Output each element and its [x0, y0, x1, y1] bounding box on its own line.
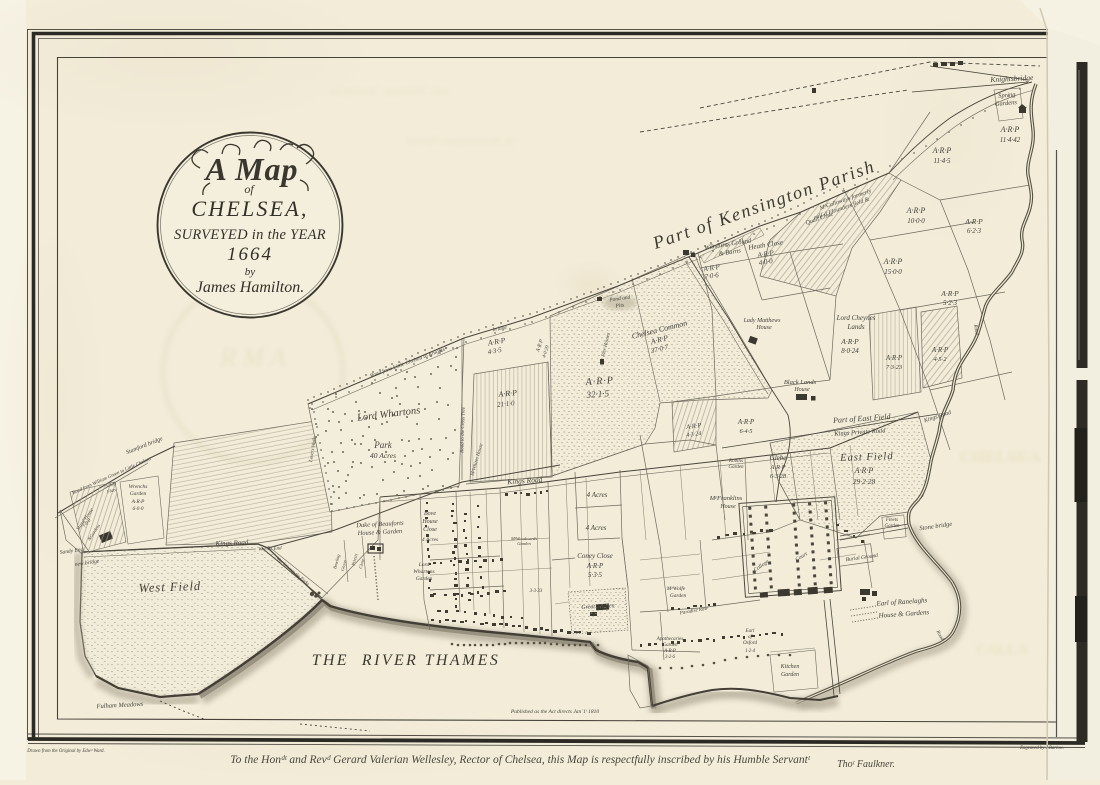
svg-text:of: of [748, 635, 753, 640]
svg-text:CALLA: CALLA [976, 642, 1029, 658]
svg-text:House: House [421, 519, 438, 525]
svg-text:A·R·P: A·R·P [586, 562, 604, 570]
svg-text:Park: Park [373, 440, 393, 450]
svg-text:5·2·3: 5·2·3 [943, 299, 958, 307]
svg-text:4·5·2: 4·5·2 [934, 356, 948, 363]
svg-text:Drawn from the Original by Edw: Drawn from the Original by Edwᵈ Ward. [26, 748, 105, 754]
svg-text:Thoᵗ Faulkner.: Thoᵗ Faulkner. [837, 759, 895, 770]
svg-text:Bove: Bove [424, 511, 436, 517]
svg-text:Kings Road: Kings Road [214, 538, 249, 547]
svg-text:MᵖFranklins: MᵖFranklins [709, 495, 743, 502]
svg-text:Whartons: Whartons [413, 569, 434, 575]
svg-text:Lord: Lord [418, 562, 430, 568]
svg-text:7·3·23: 7·3·23 [886, 364, 903, 371]
svg-text:Garden: Garden [884, 524, 900, 529]
svg-text:MᵖWolfe: MᵖWolfe [666, 585, 686, 592]
svg-text:1·2·4: 1·2·4 [745, 649, 756, 654]
svg-text:Black Lands: Black Lands [784, 379, 817, 386]
svg-text:Garden: Garden [130, 491, 147, 497]
svg-text:6·2·3: 6·2·3 [967, 227, 982, 235]
svg-text:11·4·5: 11·4·5 [934, 157, 951, 165]
svg-text:A·R·P: A·R·P [584, 375, 614, 388]
svg-text:East Field: East Field [839, 451, 894, 464]
svg-text:Garden: Garden [416, 576, 433, 582]
svg-text:R M A: R M A [219, 343, 286, 372]
svg-text:Wrenchs: Wrenchs [129, 484, 148, 490]
svg-text:3·2·6: 3·2·6 [665, 655, 676, 660]
svg-text:Lord Cheynes: Lord Cheynes [836, 314, 876, 322]
svg-text:A·R·P: A·R·P [769, 464, 785, 471]
svg-text:Garden: Garden [781, 672, 799, 678]
svg-text:House: House [755, 325, 772, 331]
svg-text:West Field: West Field [138, 579, 201, 595]
svg-text:1664: 1664 [227, 244, 273, 265]
svg-text:Oxford: Oxford [743, 641, 757, 646]
svg-text:A·R·P: A·R·P [854, 466, 874, 475]
svg-text:10·0·0: 10·0·0 [907, 217, 925, 225]
svg-text:A·R·P: A·R·P [906, 206, 926, 215]
svg-text:A·R·P: A·R·P [931, 346, 949, 354]
svg-text:8·0·24: 8·0·24 [841, 347, 859, 355]
svg-text:Engraved by J.Barlow.: Engraved by J.Barlow. [1019, 746, 1064, 751]
svg-text:4 Acres: 4 Acres [586, 524, 607, 532]
svg-text:4 Acres: 4 Acres [422, 536, 438, 543]
svg-text:4 Acres: 4 Acres [587, 491, 608, 499]
svg-text:A·R·P: A·R·P [964, 217, 983, 226]
svg-text:3·3·33: 3·3·33 [530, 589, 543, 594]
svg-text:Apothecaries: Apothecaries [656, 637, 683, 642]
svg-text:CHELSEA: CHELSEA [959, 447, 1041, 466]
svg-text:House: House [793, 387, 810, 393]
svg-text:6·4·5: 6·4·5 [740, 428, 754, 435]
svg-text:A·R·P: A·R·P [131, 499, 145, 505]
svg-text:40 Acres: 40 Acres [370, 451, 396, 460]
svg-text:A·R·P: A·R·P [932, 146, 952, 155]
svg-text:32·1·5: 32·1·5 [585, 388, 610, 400]
svg-text:A·R·P: A·R·P [663, 649, 676, 654]
svg-text:29·2·28: 29·2·28 [853, 477, 876, 486]
svg-text:5·3·5: 5·3·5 [588, 571, 603, 579]
svg-text:A·R·P: A·R·P [840, 337, 859, 346]
svg-text:A·R·P: A·R·P [737, 418, 755, 426]
svg-text:A·R·P: A·R·P [883, 257, 903, 266]
svg-text:THE RIVER THAMES: THE RIVER THAMES [312, 652, 501, 669]
svg-text:CHELSEA,: CHELSEA, [191, 196, 308, 221]
svg-text:Garden: Garden [517, 541, 531, 546]
svg-text:by: by [245, 266, 256, 278]
svg-text:Fleets: Fleets [885, 518, 898, 523]
svg-text:Garden: Garden [670, 593, 687, 599]
svg-text:Garden: Garden [662, 643, 678, 648]
svg-text:6·3·28: 6·3·28 [770, 473, 787, 480]
svg-text:Published as the Act directs J: Published as the Act directs Janʾ1ᵗ 1810 [510, 708, 600, 715]
svg-text:House: House [719, 504, 736, 510]
svg-text:Robins: Robins [728, 459, 743, 464]
svg-text:A·R·P: A·R·P [940, 289, 959, 298]
svg-text:SURVEYED in the YEAR: SURVEYED in the YEAR [174, 227, 326, 243]
svg-text:A·R·P: A·R·P [885, 354, 903, 362]
svg-text:nommoC aeslehC tse: nommoC aeslehC tse [331, 84, 449, 99]
svg-text:James Hamilton.: James Hamilton. [196, 279, 304, 296]
svg-text:Kitchen: Kitchen [780, 664, 800, 670]
svg-text:Lands: Lands [846, 323, 864, 331]
svg-text:6·0·0: 6·0·0 [133, 506, 144, 512]
svg-text:11·4·42: 11·4·42 [1000, 136, 1021, 144]
svg-text:Close: Close [423, 527, 437, 533]
svg-text:Lady Matthews: Lady Matthews [743, 318, 781, 324]
svg-text:hsiraP notgnisneK fo: hsiraP notgnisneK fo [405, 133, 516, 148]
svg-text:Earl: Earl [745, 629, 756, 634]
svg-text:A·R·P: A·R·P [1000, 125, 1020, 134]
svg-text:Garden: Garden [728, 465, 744, 470]
svg-text:Glebe: Glebe [770, 454, 787, 462]
svg-text:Coney Close: Coney Close [577, 552, 613, 560]
svg-text:To the Honᵈᵗ and Revᵈ Gerard V: To the Honᵈᵗ and Revᵈ Gerard Valerian We… [230, 754, 810, 766]
svg-text:15·0·0: 15·0·0 [884, 268, 902, 276]
